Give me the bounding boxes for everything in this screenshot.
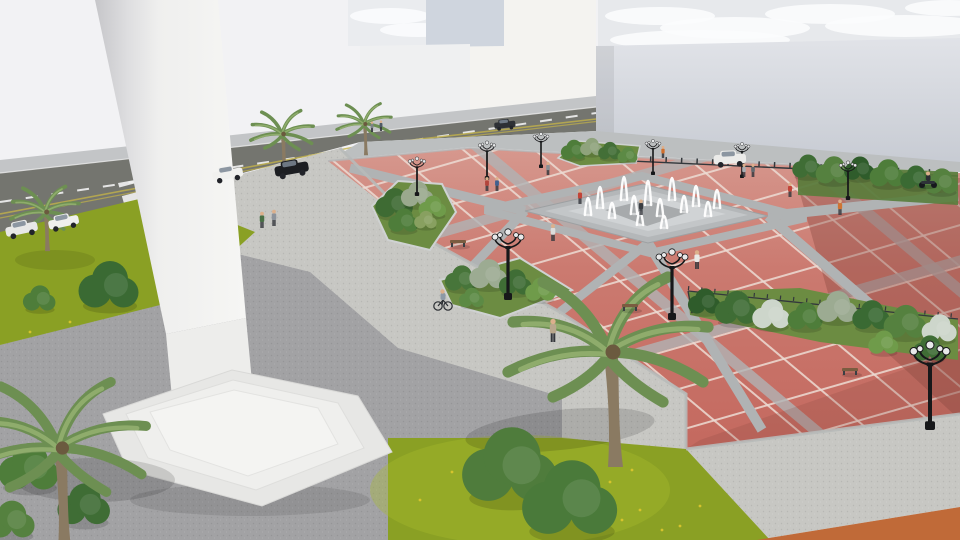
jet-splash bbox=[714, 207, 721, 209]
jet-splash bbox=[621, 199, 628, 201]
jet-splash bbox=[693, 205, 700, 207]
jet-splash bbox=[585, 214, 592, 216]
jet-splash bbox=[661, 227, 668, 229]
grass-flower bbox=[419, 499, 422, 502]
grass-flower bbox=[631, 469, 634, 472]
jet-splash bbox=[631, 213, 638, 215]
grass-flower bbox=[679, 525, 682, 528]
jet-splash bbox=[705, 215, 712, 217]
jet-splash bbox=[681, 211, 688, 213]
cloud bbox=[350, 8, 430, 24]
jet-splash bbox=[609, 217, 616, 219]
jet-splash bbox=[597, 207, 604, 209]
building-upper-box bbox=[426, 0, 504, 47]
grass-flower bbox=[451, 471, 454, 474]
grass-flower bbox=[29, 331, 32, 334]
grass-flower bbox=[621, 519, 624, 522]
grass-flower bbox=[69, 321, 72, 324]
grass-flower bbox=[609, 481, 612, 484]
grass-flower bbox=[639, 509, 642, 512]
scene-svg bbox=[0, 0, 960, 540]
jet-splash bbox=[637, 224, 644, 226]
grass-flower bbox=[661, 529, 664, 532]
grass-flower bbox=[699, 505, 702, 508]
jet-splash bbox=[645, 204, 652, 206]
palm-shadow-left bbox=[15, 250, 95, 270]
jet-splash bbox=[669, 199, 676, 201]
plaza-render-scene bbox=[0, 0, 960, 540]
